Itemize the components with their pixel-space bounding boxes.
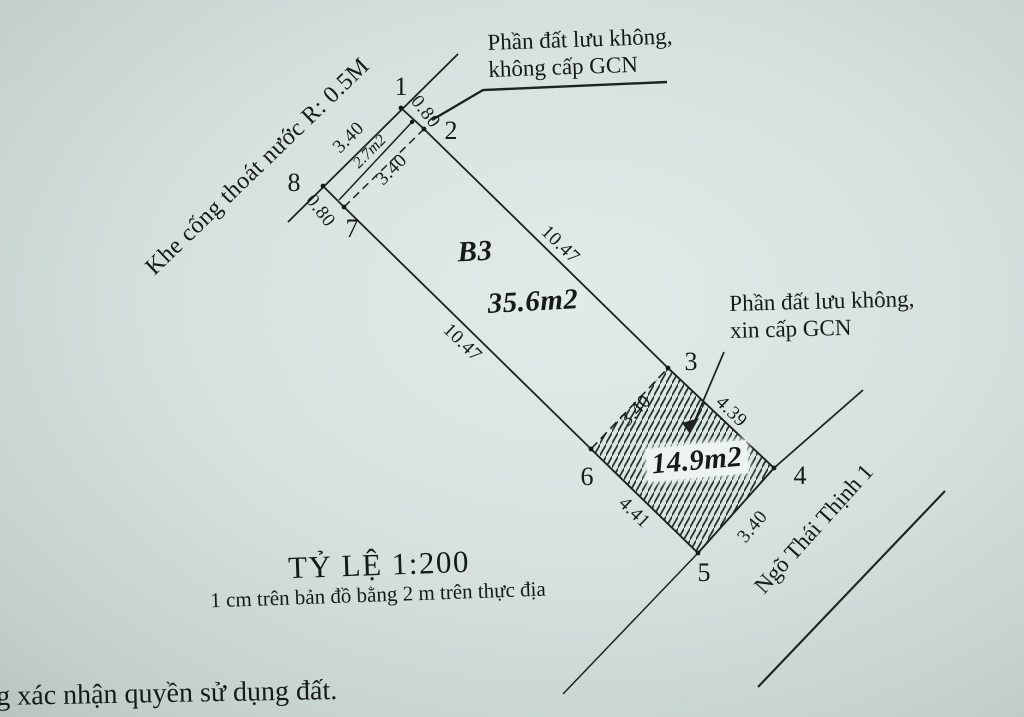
- point-label-7: 7: [346, 214, 359, 244]
- note-line: xin cấp GCN: [730, 312, 916, 344]
- marker-strip-right: [410, 120, 414, 124]
- cadastral-sheet: Phần đất lưu không, không cấp GCN Phần đ…: [0, 0, 1024, 717]
- road-edge-near: [774, 390, 863, 468]
- road-edge-far: [758, 491, 945, 687]
- note-line: Phần đất lưu không,: [729, 285, 915, 317]
- note-reserved-request-certificate: Phần đất lưu không, xin cấp GCN: [729, 285, 915, 344]
- edge-4-5-extension: [563, 553, 698, 694]
- parcel-drawing: [0, 0, 1024, 717]
- marker-point-7: [342, 205, 347, 210]
- marker-point-4: [772, 466, 777, 471]
- main-parcel-area: 35.6m2: [487, 283, 579, 321]
- point-label-2: 2: [445, 116, 458, 146]
- certification-caption: g xác nhận quyền sử dụng đất.: [0, 675, 338, 713]
- main-parcel-name: B3: [457, 235, 494, 270]
- point-label-6: 6: [581, 462, 594, 492]
- leader-top-note: [432, 82, 667, 120]
- marker-point-3: [666, 366, 671, 371]
- marker-point-6: [589, 447, 594, 452]
- point-label-4: 4: [794, 461, 807, 491]
- marker-point-1: [399, 106, 404, 111]
- point-label-5: 5: [698, 558, 711, 588]
- marker-point-8: [321, 184, 326, 189]
- marker-point-5: [696, 551, 701, 556]
- point-label-8: 8: [288, 168, 301, 198]
- note-reserved-no-certificate: Phần đất lưu không, không cấp GCN: [487, 23, 674, 83]
- point-label-3: 3: [685, 347, 698, 377]
- point-label-1: 1: [395, 72, 408, 102]
